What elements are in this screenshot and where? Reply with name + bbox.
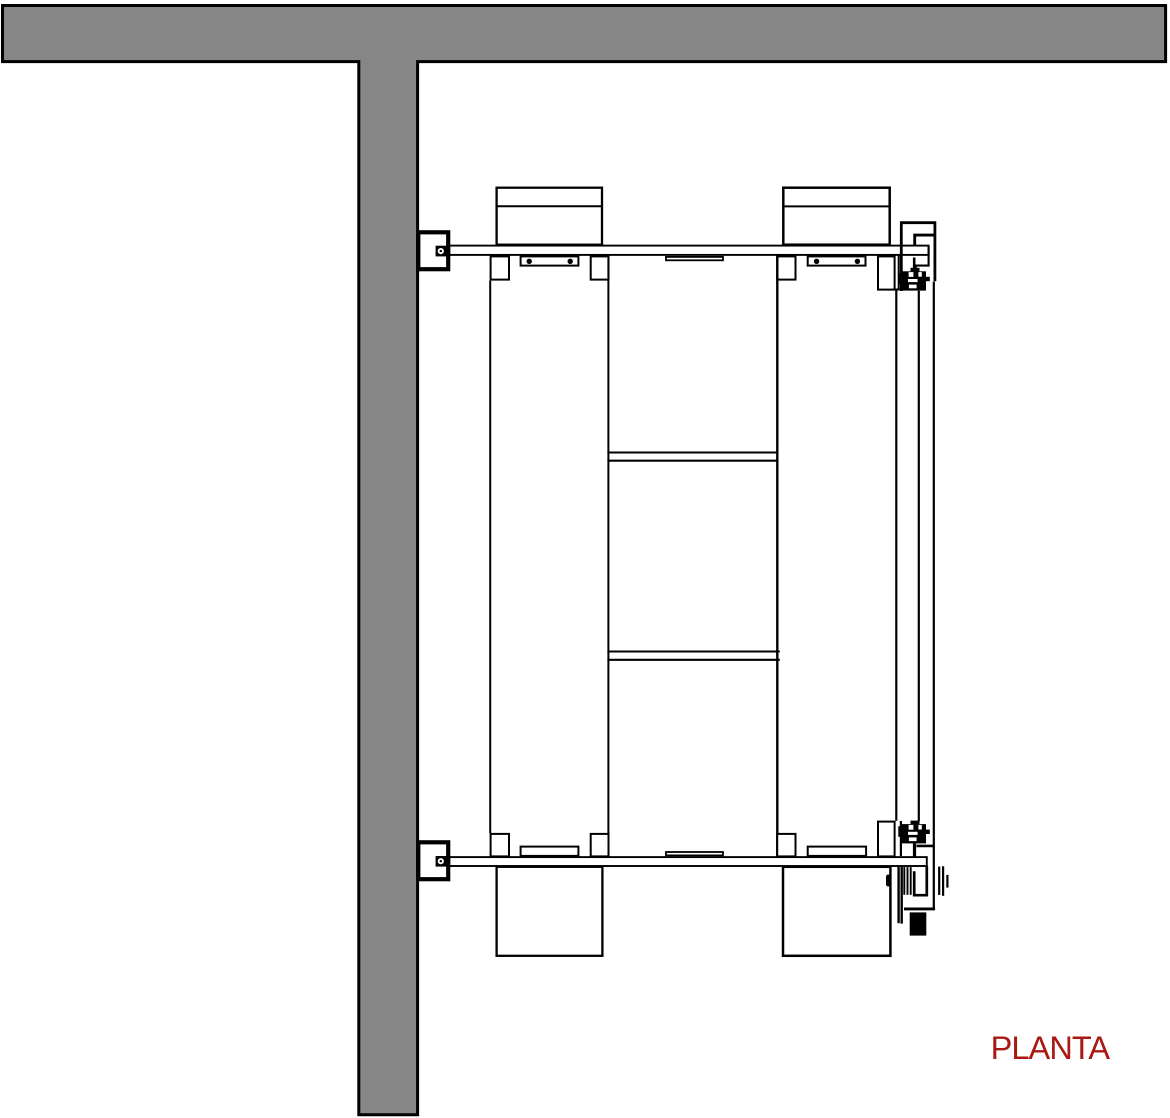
svg-text:PLANTA: PLANTA: [991, 1030, 1111, 1066]
